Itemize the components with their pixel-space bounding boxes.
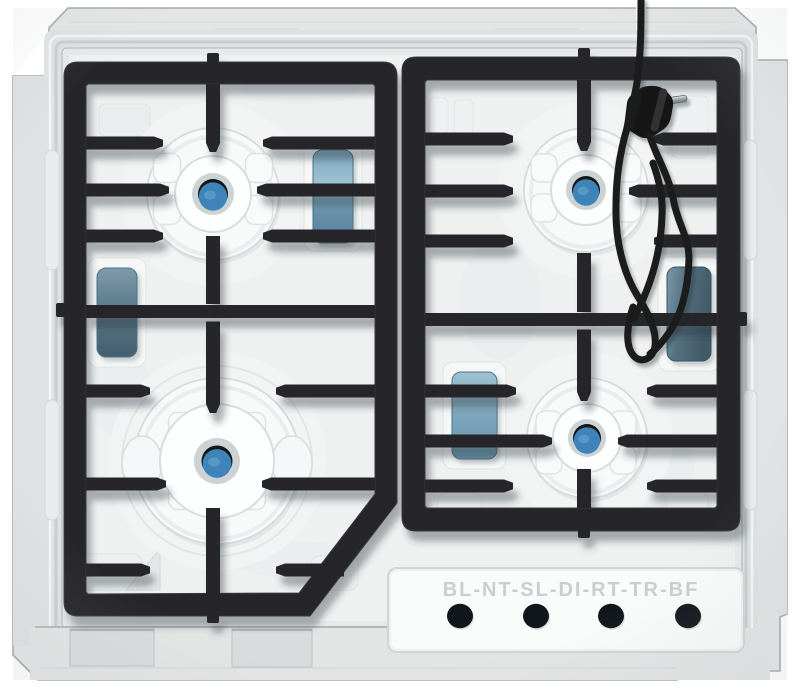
svg-text:BL-NT-SL-DI-RT-TR-BF: BL-NT-SL-DI-RT-TR-BF [443, 579, 700, 601]
